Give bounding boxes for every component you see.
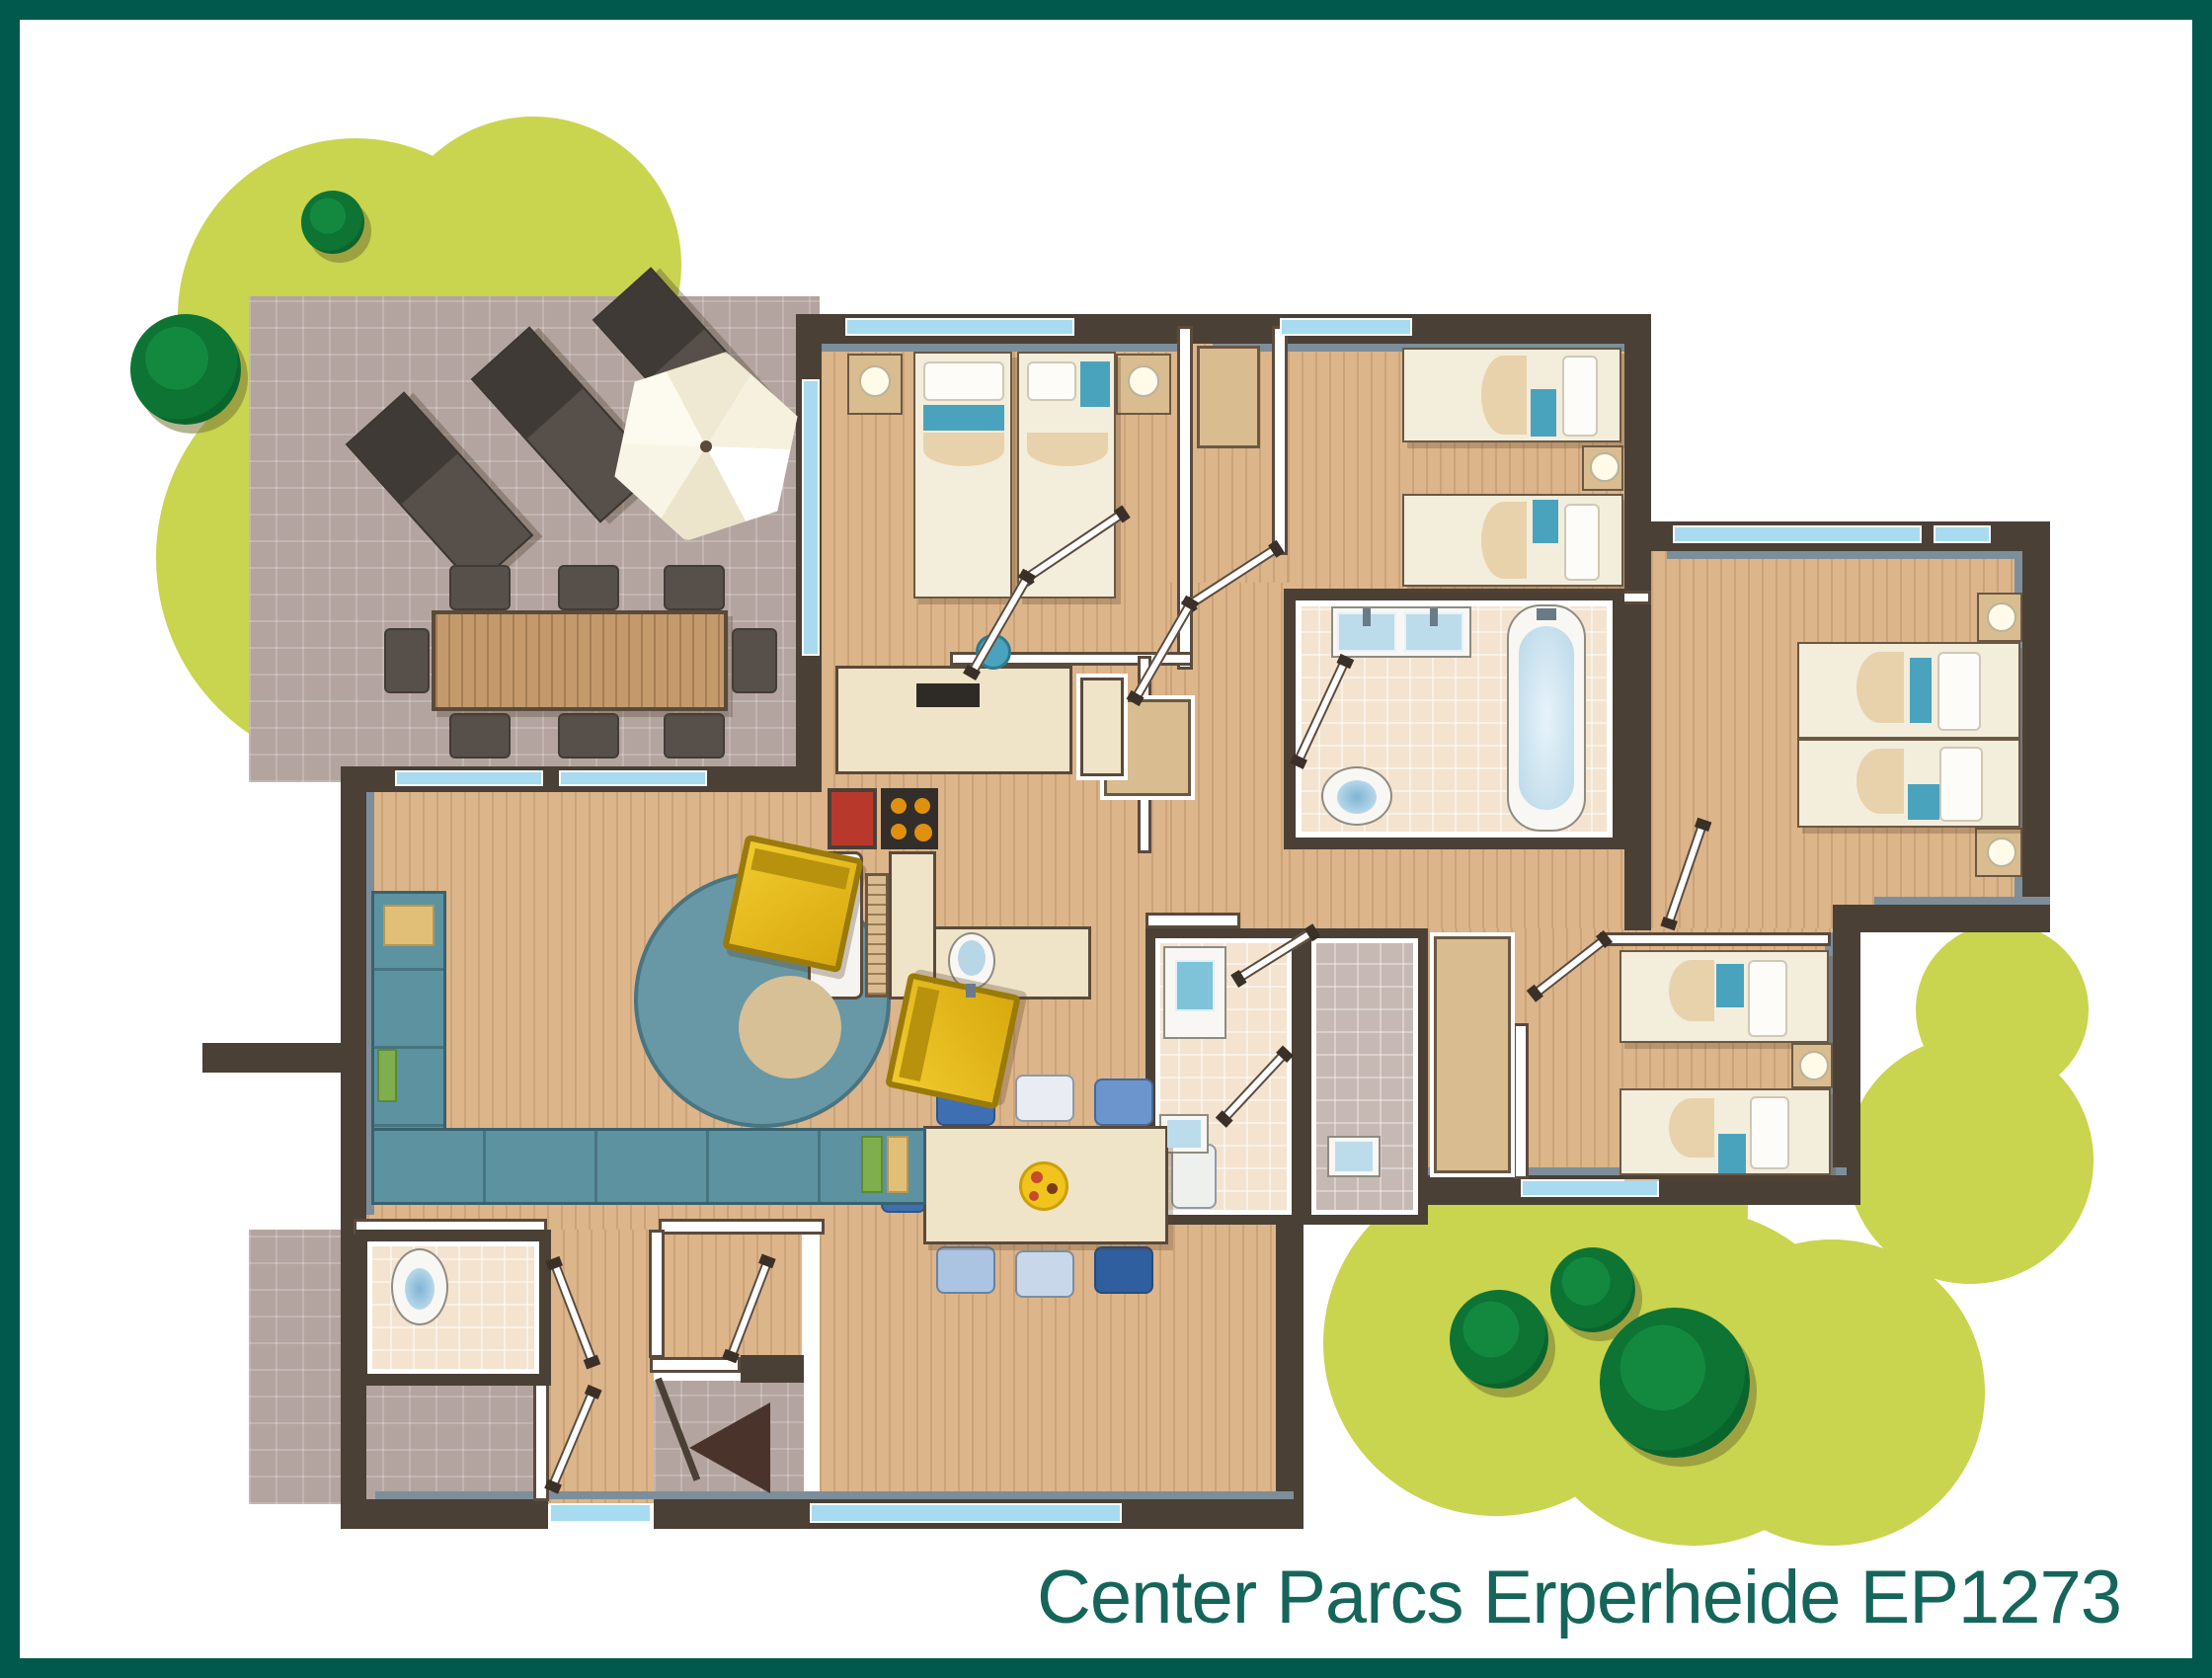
kitchen-side-table	[1080, 678, 1124, 776]
kitchen-corner-unit	[828, 788, 877, 849]
kitchen-counter	[835, 666, 1072, 774]
wall-bedroom4-west	[1513, 1023, 1529, 1179]
corner-sofa	[371, 1128, 926, 1205]
wall-accent	[816, 344, 1183, 352]
dining-chair	[1015, 1250, 1074, 1298]
wall-stub-west	[202, 1043, 343, 1073]
lamp-icon	[1128, 365, 1159, 397]
outdoor-chair	[449, 713, 511, 759]
wall-accent	[375, 1491, 1294, 1499]
wall-east-bedroom4	[1833, 905, 1860, 1203]
window	[395, 770, 543, 786]
hob-burner	[891, 798, 907, 814]
toilet-bowl	[405, 1268, 434, 1310]
wall-corridor-south	[1145, 913, 1240, 928]
tree-icon	[1600, 1308, 1750, 1458]
rug-center	[739, 976, 841, 1079]
bathtub-water	[1519, 626, 1574, 810]
bed	[1797, 642, 2020, 739]
dining-chair	[1094, 1246, 1153, 1294]
tree-icon	[1450, 1290, 1548, 1389]
pizza-topping	[1031, 1171, 1043, 1183]
floor-dining-se	[1145, 1225, 1278, 1503]
wall-living-south	[659, 1219, 825, 1235]
outdoor-chair	[664, 713, 725, 759]
pantry-cabinet	[865, 873, 889, 998]
caption: Center Parcs Erperheide EP1273	[1037, 1555, 2121, 1640]
wall-east-dining	[1276, 1203, 1303, 1513]
dining-chair	[1015, 1075, 1074, 1122]
window	[1673, 525, 1922, 543]
window	[1280, 318, 1412, 336]
tap-icon	[1430, 608, 1438, 626]
wall-east-bedroom3	[2022, 521, 2050, 932]
outdoor-chair	[449, 565, 511, 610]
pizza-topping	[1047, 1183, 1058, 1194]
lamp-icon	[1590, 452, 1619, 482]
tap-icon	[1537, 608, 1556, 620]
pizza-plate	[1019, 1161, 1068, 1211]
bed	[1402, 348, 1621, 442]
outdoor-chair	[558, 565, 619, 610]
bed	[1017, 352, 1116, 599]
hob-burner	[914, 824, 932, 841]
bed	[1619, 950, 1829, 1043]
dining-chair	[936, 1246, 995, 1294]
bed	[1619, 1088, 1831, 1175]
bed	[913, 352, 1012, 599]
hob-burner	[914, 798, 930, 814]
lamp-icon	[1799, 1051, 1829, 1080]
wall-accent	[1874, 897, 2050, 905]
outdoor-chair	[558, 713, 619, 759]
wall-north-bedroom2	[1197, 314, 1651, 344]
wall-accent	[1667, 551, 2022, 559]
tree-icon	[301, 191, 364, 254]
window	[845, 318, 1074, 336]
bed	[1402, 494, 1623, 587]
sofa-cushion	[861, 1136, 883, 1193]
wall-bedroom2-west	[1272, 326, 1288, 555]
sliding-door-bedroom4	[1600, 932, 1831, 946]
washbasin-bowl	[1167, 1120, 1201, 1148]
armchair	[885, 972, 1021, 1110]
wall-east-bedroom2	[1624, 314, 1651, 930]
window	[549, 1503, 652, 1523]
bed	[1797, 739, 2020, 828]
tap-icon	[966, 984, 976, 998]
lamp-icon	[1987, 602, 2016, 632]
garden-lawn-bottom-right	[1916, 923, 2089, 1096]
wall-front-door	[741, 1355, 804, 1383]
wc-room	[355, 1230, 551, 1386]
coffee-machine	[916, 683, 980, 707]
hob	[881, 788, 938, 849]
window	[802, 379, 820, 656]
tap-icon	[1363, 608, 1371, 626]
wardrobe	[1197, 346, 1260, 448]
floor-corridor	[1289, 847, 1652, 930]
outdoor-chair	[732, 628, 777, 693]
washbasin-bowl	[1335, 1142, 1373, 1171]
shower-tray	[1175, 960, 1215, 1011]
sofa-cushion	[887, 1136, 908, 1193]
outdoor-chair	[384, 628, 430, 693]
wall-hall-east	[649, 1230, 665, 1358]
kitchen-sink-bowl	[958, 940, 986, 976]
dining-chair	[1094, 1079, 1153, 1126]
parasol-pole	[700, 440, 712, 452]
wall-south-bedroom3	[1860, 905, 2050, 932]
tree-icon	[1550, 1247, 1635, 1332]
armchair	[722, 835, 864, 974]
second-shower-room	[1302, 928, 1428, 1225]
pizza-topping	[1029, 1191, 1039, 1201]
window	[1521, 1179, 1659, 1197]
floor-hall-entry	[549, 1356, 654, 1503]
wall-west	[341, 766, 366, 1529]
window	[1934, 525, 1991, 543]
tree-icon	[130, 314, 241, 425]
window	[559, 770, 707, 786]
wardrobe	[1434, 936, 1511, 1173]
wall-south	[341, 1499, 548, 1529]
outdoor-chair	[664, 565, 725, 610]
outdoor-table	[432, 610, 728, 711]
floor-plan-canvas: Center Parcs Erperheide EP1273	[0, 0, 2212, 1678]
lamp-icon	[859, 365, 891, 397]
sofa-cushion	[377, 1049, 397, 1102]
window	[810, 1503, 1122, 1523]
hob-burner	[891, 824, 907, 839]
sofa-cushion	[383, 905, 434, 946]
lamp-icon	[1987, 838, 2016, 867]
toilet-bowl	[1337, 780, 1377, 814]
